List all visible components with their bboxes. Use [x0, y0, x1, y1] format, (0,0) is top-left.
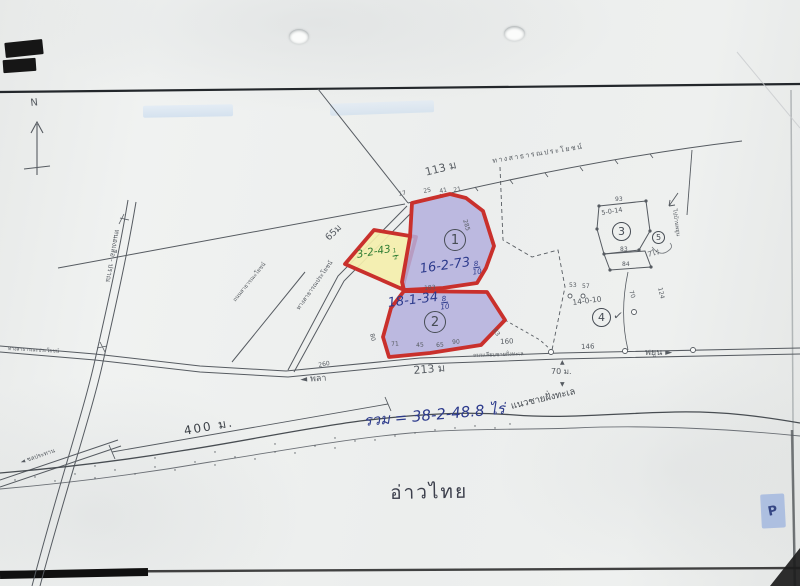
- edge-number: 93: [615, 197, 623, 203]
- destination-east-label: พยูน: [645, 348, 662, 358]
- destination-west: ◄ พลา: [300, 375, 327, 385]
- plot2-frac-den: 10: [440, 303, 450, 311]
- plot3-number: 3: [618, 225, 625, 238]
- plot5-number-circle: 5: [652, 231, 665, 244]
- plot1-number: 1: [451, 233, 459, 248]
- check-mark-icon: ✓: [612, 309, 624, 322]
- plot2-number: 2: [431, 315, 439, 330]
- plot3-number-circle: 3: [612, 222, 631, 241]
- edge-number: 83: [620, 247, 628, 253]
- edge-number: 183: [424, 285, 436, 292]
- segment-146: 146: [581, 344, 595, 351]
- plot1-number-circle: 1: [444, 229, 466, 251]
- arrow-left-icon: ◄: [20, 458, 27, 466]
- plot4-number: 4: [598, 311, 605, 324]
- arrow-up-icon: ▲: [560, 360, 565, 366]
- scanned-survey-map: N 113 ม ทางสาธารณประโยชน์ 65ม ทางสาธารณป…: [0, 0, 800, 586]
- distance-213: 213 ม: [413, 362, 446, 376]
- arrow-right-icon: ►: [665, 348, 672, 358]
- destination-west-label: พลา: [310, 374, 327, 385]
- edge-number: 84: [622, 262, 630, 268]
- north-arrow-icon: [24, 122, 50, 175]
- edge-number: 80: [368, 333, 375, 342]
- p-sticker-label: P: [767, 503, 779, 520]
- beach-stipple: [14, 423, 510, 481]
- destination-east: พยูน ►: [645, 349, 672, 358]
- survey-markers: [549, 294, 696, 355]
- beach-gap-70: 70 ม.: [551, 368, 572, 376]
- edge-number: 53: [569, 283, 577, 289]
- plot4-number-circle: 4: [592, 308, 611, 327]
- sea-name: อ่าวไทย: [390, 483, 468, 503]
- edge-number: 45: [416, 342, 424, 349]
- edge-number: 90: [452, 339, 460, 346]
- edge-number: 65: [436, 342, 444, 349]
- north-label: N: [30, 98, 38, 109]
- p-sticker: P: [760, 493, 786, 528]
- edge-number: 57: [582, 284, 590, 290]
- plot2-number-circle: 2: [424, 311, 446, 333]
- edge-number: 71: [391, 341, 399, 348]
- segment-160: 160: [500, 338, 514, 346]
- arrow-down-icon: ▼: [560, 382, 565, 388]
- plot-yellow-frac-den: 2: [394, 256, 399, 262]
- edge-number: 70: [627, 290, 635, 299]
- plot5-number: 5: [656, 233, 661, 242]
- arrow-left-icon: ◄: [300, 375, 307, 385]
- plot1-frac-den: 10: [472, 268, 482, 276]
- edge-number: 124: [656, 287, 664, 300]
